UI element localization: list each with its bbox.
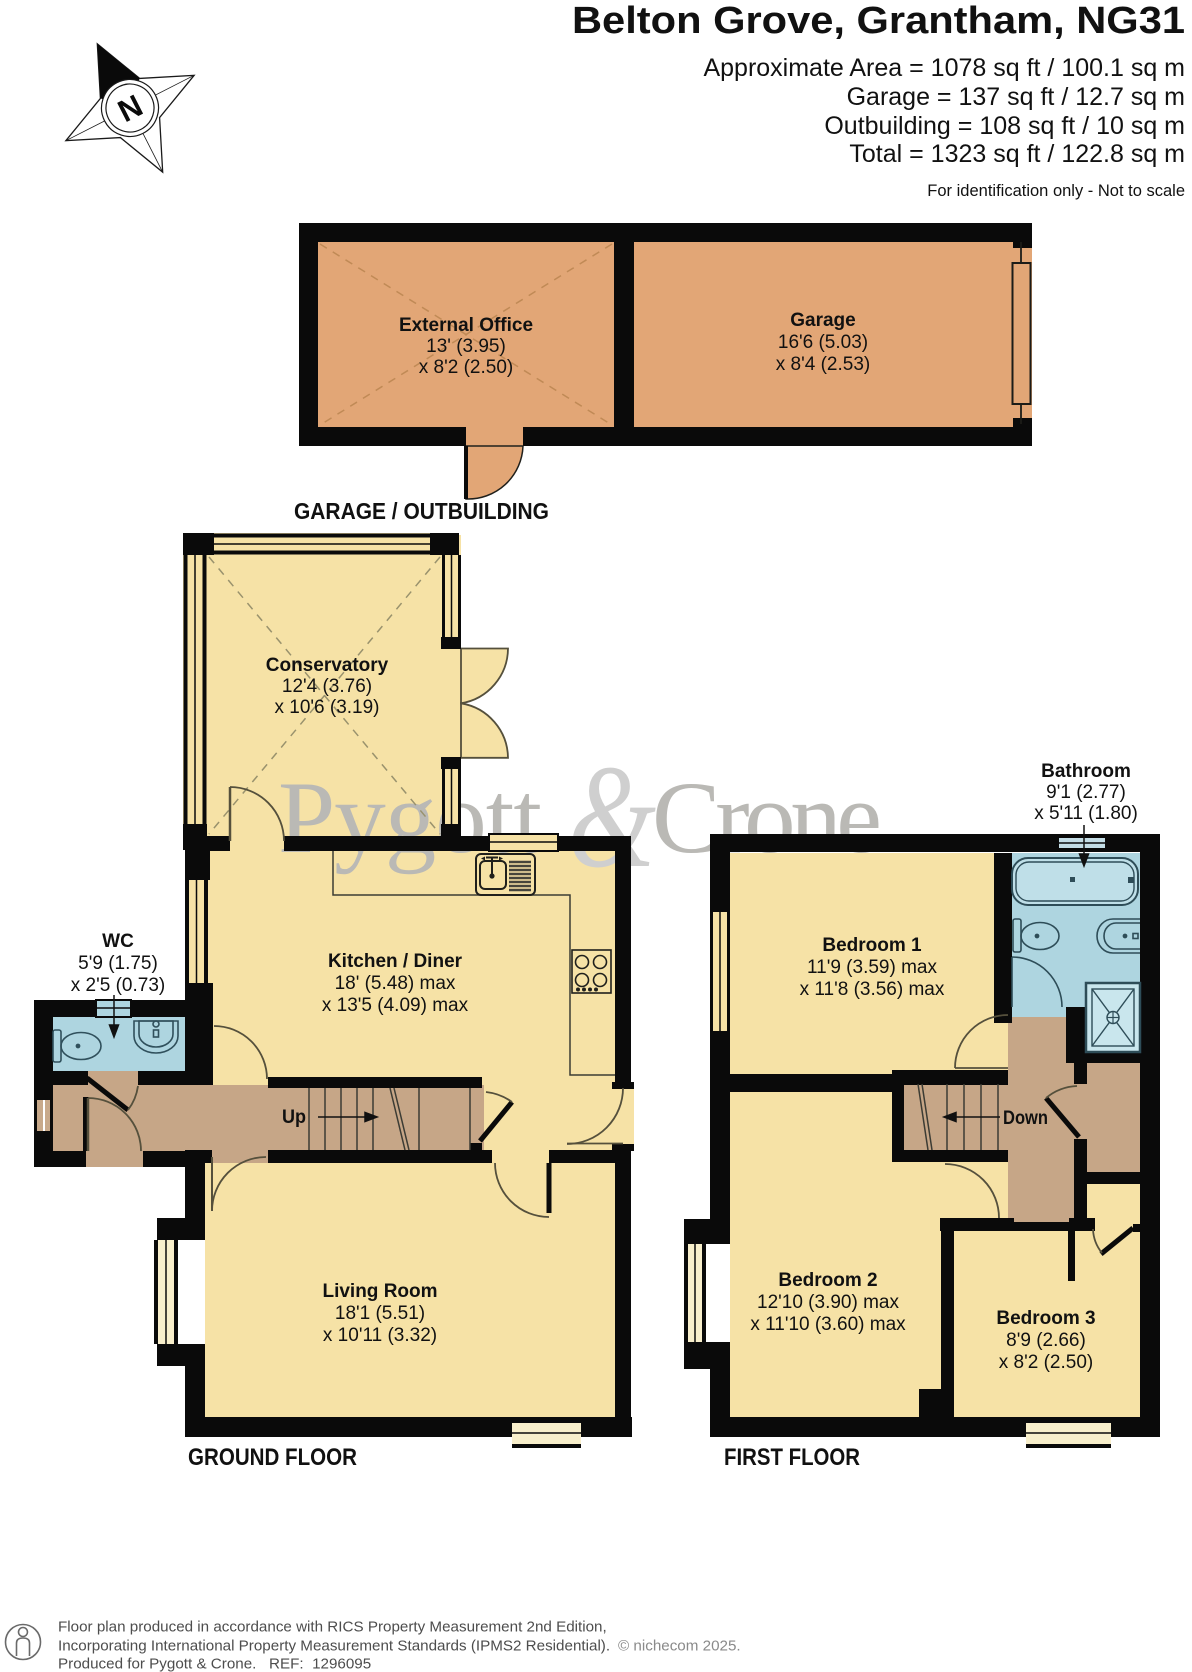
svg-text:Approximate Area = 1078 sq ft: Approximate Area = 1078 sq ft / 100.1 sq… bbox=[703, 54, 1185, 82]
svg-text:Bedroom 1: Bedroom 1 bbox=[822, 935, 922, 956]
svg-text:x 10'11 (3.32): x 10'11 (3.32) bbox=[323, 1325, 437, 1346]
svg-text:Conservatory: Conservatory bbox=[266, 655, 389, 676]
svg-text:Garage: Garage bbox=[790, 310, 855, 331]
svg-text:x 10'6 (3.19): x 10'6 (3.19) bbox=[274, 697, 379, 718]
svg-text:Kitchen / Diner: Kitchen / Diner bbox=[328, 951, 463, 972]
svg-text:FIRST FLOOR: FIRST FLOOR bbox=[724, 1444, 860, 1471]
svg-text:GARAGE / OUTBUILDING: GARAGE / OUTBUILDING bbox=[294, 498, 549, 524]
svg-text:&: & bbox=[568, 735, 656, 899]
svg-text:x 8'2 (2.50): x 8'2 (2.50) bbox=[419, 357, 513, 378]
svg-text:Total = 1323 sq ft / 122.8 sq: Total = 1323 sq ft / 122.8 sq m bbox=[849, 140, 1185, 168]
svg-text:13' (3.95): 13' (3.95) bbox=[426, 336, 506, 357]
svg-text:Living Room: Living Room bbox=[322, 1281, 437, 1302]
svg-text:x 8'2 (2.50): x 8'2 (2.50) bbox=[999, 1352, 1093, 1373]
svg-text:18' (5.48) max: 18' (5.48) max bbox=[335, 973, 456, 994]
svg-text:9'1 (2.77): 9'1 (2.77) bbox=[1046, 782, 1126, 803]
svg-text:Pygott: Pygott bbox=[278, 761, 542, 875]
svg-text:12'4 (3.76): 12'4 (3.76) bbox=[282, 676, 372, 697]
svg-text:For identification only - Not: For identification only - Not to scale bbox=[927, 182, 1185, 200]
svg-text:Produced for Pygott & Crone.: Produced for Pygott & Crone. REF: 129609… bbox=[58, 1656, 371, 1672]
svg-text:Belton Grove, Grantham, NG31: Belton Grove, Grantham, NG31 bbox=[572, 0, 1185, 42]
svg-text:x 11'8 (3.56) max: x 11'8 (3.56) max bbox=[800, 979, 945, 1000]
svg-text:8'9 (2.66): 8'9 (2.66) bbox=[1006, 1330, 1086, 1351]
svg-text:Floor plan produced in accorda: Floor plan produced in accordance with R… bbox=[58, 1619, 607, 1636]
svg-text:Down: Down bbox=[1003, 1108, 1048, 1129]
svg-text:Bedroom 3: Bedroom 3 bbox=[996, 1308, 1095, 1329]
svg-text:Bedroom 2: Bedroom 2 bbox=[778, 1270, 877, 1291]
svg-text:18'1 (5.51): 18'1 (5.51) bbox=[335, 1303, 425, 1324]
svg-text:x 11'10 (3.60) max: x 11'10 (3.60) max bbox=[750, 1314, 906, 1335]
svg-text:12'10 (3.90) max: 12'10 (3.90) max bbox=[757, 1292, 899, 1313]
svg-text:Up: Up bbox=[282, 1107, 306, 1128]
svg-text:16'6 (5.03): 16'6 (5.03) bbox=[778, 332, 868, 353]
svg-text:5'9 (1.75): 5'9 (1.75) bbox=[78, 953, 158, 974]
svg-text:x 8'4 (2.53): x 8'4 (2.53) bbox=[776, 354, 870, 375]
svg-text:11'9 (3.59) max: 11'9 (3.59) max bbox=[807, 957, 938, 978]
svg-text:x 5'11 (1.80): x 5'11 (1.80) bbox=[1034, 803, 1138, 824]
svg-text:Incorporating International Pr: Incorporating International Property Mea… bbox=[58, 1638, 610, 1655]
svg-text:GROUND FLOOR: GROUND FLOOR bbox=[188, 1444, 357, 1471]
svg-text:© nichecom 2025.: © nichecom 2025. bbox=[618, 1638, 741, 1655]
svg-text:x 2'5 (0.73): x 2'5 (0.73) bbox=[71, 975, 165, 996]
svg-text:x 13'5 (4.09) max: x 13'5 (4.09) max bbox=[322, 995, 469, 1016]
svg-text:Garage = 137 sq ft / 12.7 sq m: Garage = 137 sq ft / 12.7 sq m bbox=[847, 83, 1185, 111]
svg-text:Bathroom: Bathroom bbox=[1041, 761, 1131, 782]
svg-text:Crone: Crone bbox=[652, 761, 882, 875]
svg-text:External Office: External Office bbox=[399, 315, 533, 336]
svg-text:Outbuilding = 108 sq ft / 10 s: Outbuilding = 108 sq ft / 10 sq m bbox=[824, 112, 1185, 140]
svg-text:WC: WC bbox=[102, 931, 134, 952]
